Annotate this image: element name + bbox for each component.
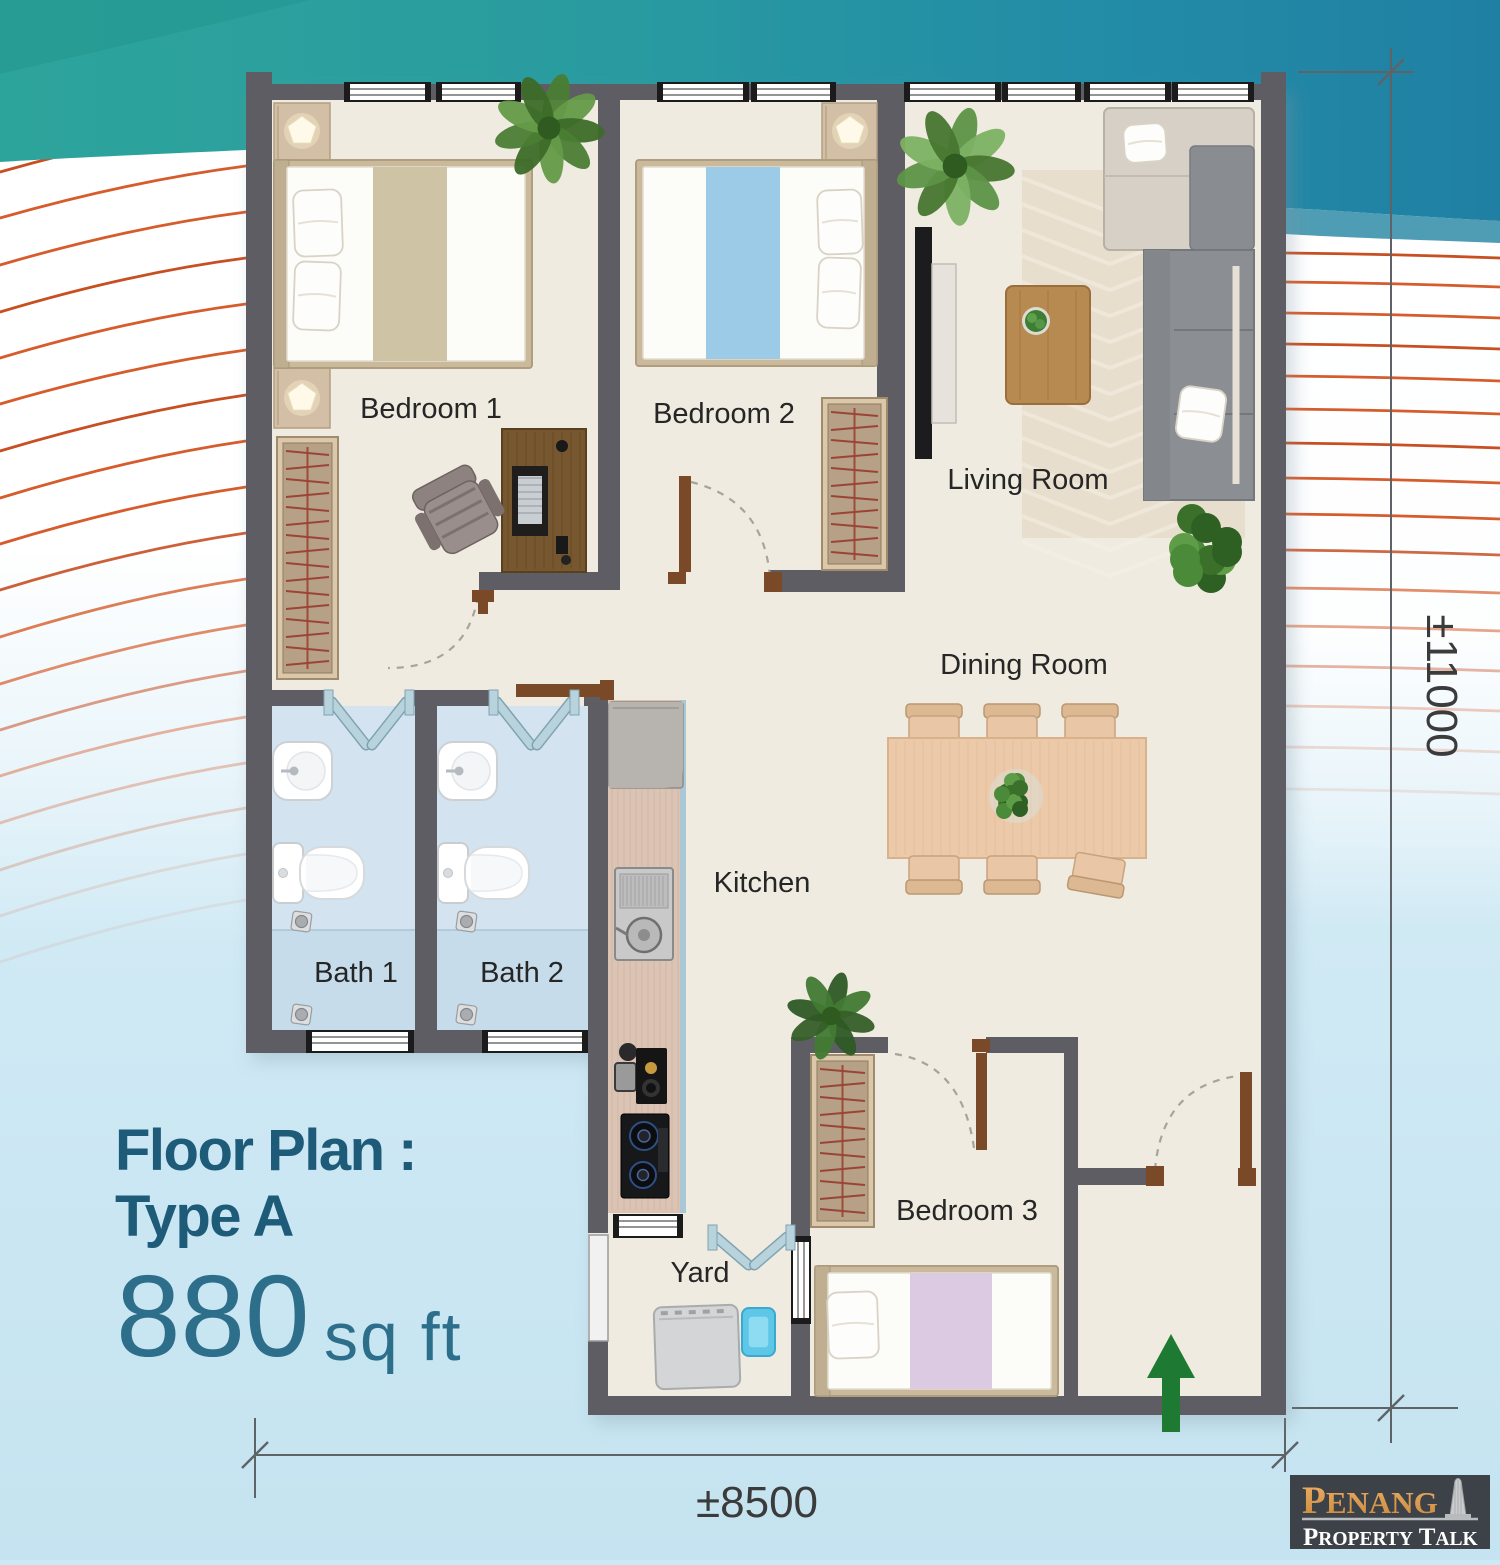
svg-text:Bedroom 3: Bedroom 3	[896, 1195, 1038, 1227]
svg-text:Floor Plan :: Floor Plan :	[115, 1118, 416, 1183]
svg-text:±11000: ±11000	[1417, 614, 1466, 757]
svg-text:880: 880	[116, 1251, 310, 1381]
svg-text:Bedroom 2: Bedroom 2	[653, 398, 795, 430]
svg-text:PROPERTY TALK: PROPERTY TALK	[1303, 1524, 1479, 1551]
svg-text:Bath 2: Bath 2	[480, 957, 564, 989]
svg-text:Dining Room: Dining Room	[940, 649, 1108, 681]
svg-text:sq ft: sq ft	[324, 1299, 463, 1375]
svg-text:Kitchen: Kitchen	[714, 867, 811, 899]
svg-text:Type A: Type A	[115, 1184, 294, 1249]
svg-text:Yard: Yard	[670, 1257, 729, 1289]
svg-text:Bedroom 1: Bedroom 1	[360, 393, 502, 425]
svg-text:±8500: ±8500	[696, 1478, 818, 1527]
svg-text:PENANG: PENANG	[1302, 1479, 1438, 1522]
svg-text:Living Room: Living Room	[947, 464, 1108, 496]
svg-text:Bath 1: Bath 1	[314, 957, 398, 989]
